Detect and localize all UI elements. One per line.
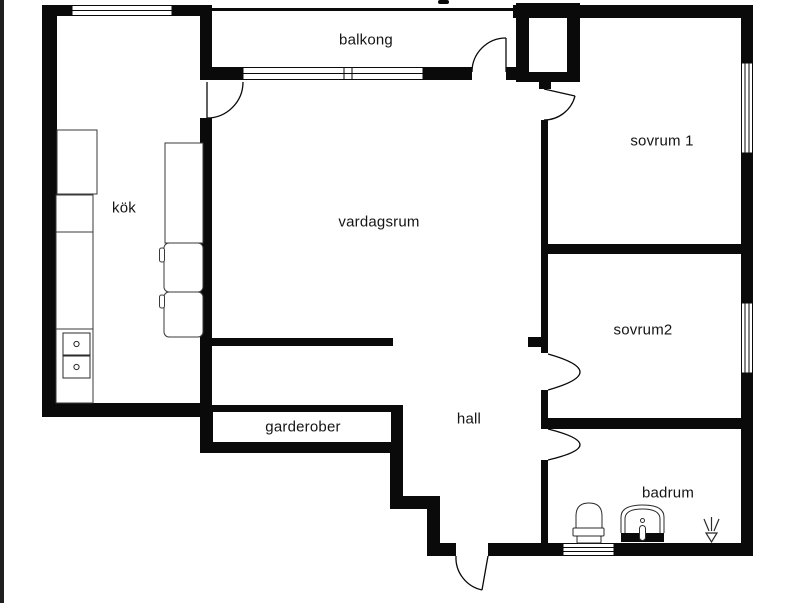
screen-edge	[0, 0, 4, 603]
shower-drain-icon	[704, 517, 719, 542]
shaft-interior	[529, 18, 567, 72]
balcony-window	[243, 68, 423, 80]
room-label-hall: hall	[457, 411, 481, 428]
wall-left-outer	[42, 5, 57, 417]
room-label-sovrum-1: sovrum 1	[630, 133, 693, 150]
balcony-door	[472, 38, 506, 72]
appliance-handle	[160, 248, 165, 262]
wall-hall-c	[541, 460, 548, 556]
wall-wardrobe-right	[390, 405, 403, 508]
floor-plan-drawing	[0, 0, 795, 603]
kitchen-island	[160, 143, 204, 337]
room-label-sovrum-2: sovrum2	[614, 322, 673, 339]
bedroom2-window	[742, 303, 753, 373]
room-label-vardagsrum: vardagsrum	[338, 214, 419, 231]
bathroom-door	[548, 429, 580, 460]
floor-plan: balkong kök vardagsrum sovrum 1 sovrum2 …	[0, 0, 795, 603]
stove-burners-icon	[63, 333, 90, 378]
bedroom2-door	[548, 354, 580, 390]
door-jamb-stub	[539, 82, 551, 89]
wall-bottom-c	[614, 543, 753, 556]
wall-bottom-a	[427, 543, 456, 556]
bathroom-window	[563, 544, 614, 556]
sink-icon	[621, 505, 664, 542]
wall-kitchen-bottom	[42, 403, 212, 417]
wall-balcony-left	[200, 67, 243, 80]
bedroom1-window	[742, 63, 753, 153]
appliance-handle	[160, 295, 165, 308]
wall-hall-a	[541, 120, 548, 353]
balcony-railing	[203, 8, 516, 11]
room-label-badrum: badrum	[642, 485, 694, 502]
kitchen-window	[72, 6, 172, 16]
cropped-text-fragment	[438, 0, 449, 4]
wall-bathroom-divider	[541, 418, 753, 429]
walls	[42, 3, 753, 556]
wall-balcony-mid	[423, 67, 472, 80]
room-label-garderober: garderober	[265, 419, 340, 436]
wall-hall-b	[541, 390, 548, 418]
wall-bedroom-divider	[541, 244, 753, 254]
wall-livingroom-bottom	[200, 338, 393, 346]
entrance-door	[456, 556, 488, 590]
bedroom1-door	[544, 89, 575, 120]
room-label-kok: kök	[112, 200, 136, 217]
wall-bottom-b	[488, 543, 563, 556]
toilet-icon	[573, 503, 604, 543]
room-label-balkong: balkong	[339, 32, 393, 49]
wall-hall-stub	[528, 337, 541, 347]
kitchen-door	[207, 82, 243, 118]
